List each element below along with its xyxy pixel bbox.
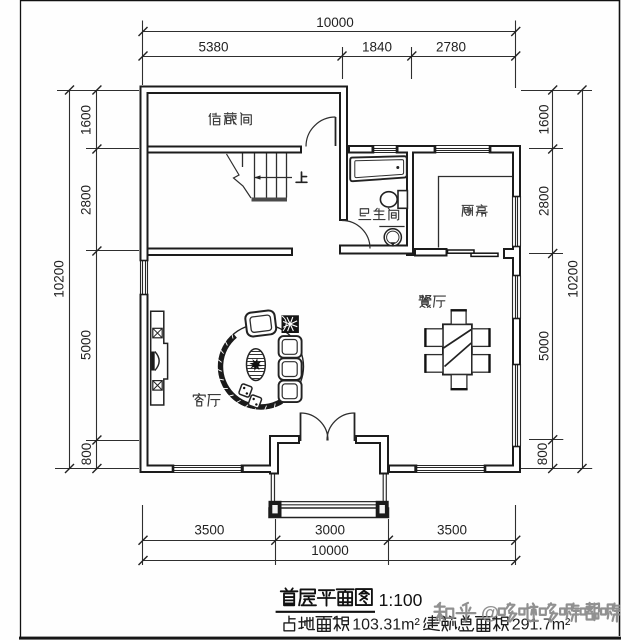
svg-text:2800: 2800	[79, 185, 94, 215]
svg-text:1840: 1840	[362, 40, 392, 55]
svg-text:5380: 5380	[198, 40, 228, 55]
svg-text:1600: 1600	[537, 104, 552, 134]
svg-text:1600: 1600	[79, 105, 94, 135]
svg-text:3000: 3000	[315, 523, 345, 538]
svg-text:800: 800	[535, 443, 550, 466]
svg-text:1:100: 1:100	[379, 590, 423, 610]
svg-text:3500: 3500	[194, 523, 224, 538]
svg-text:800: 800	[79, 443, 94, 466]
svg-text:5000: 5000	[79, 330, 94, 360]
svg-text:3500: 3500	[437, 523, 467, 538]
svg-text:10000: 10000	[316, 15, 354, 30]
svg-text:2780: 2780	[436, 40, 466, 55]
svg-text:10000: 10000	[311, 543, 349, 558]
svg-text:2800: 2800	[537, 186, 552, 216]
svg-text:10200: 10200	[52, 260, 67, 298]
svg-text:5000: 5000	[537, 331, 552, 361]
svg-text:291.7m²: 291.7m²	[512, 617, 571, 634]
svg-text:@: @	[481, 602, 499, 623]
svg-text:10200: 10200	[566, 260, 581, 298]
svg-text:103.31m²: 103.31m²	[352, 617, 420, 634]
